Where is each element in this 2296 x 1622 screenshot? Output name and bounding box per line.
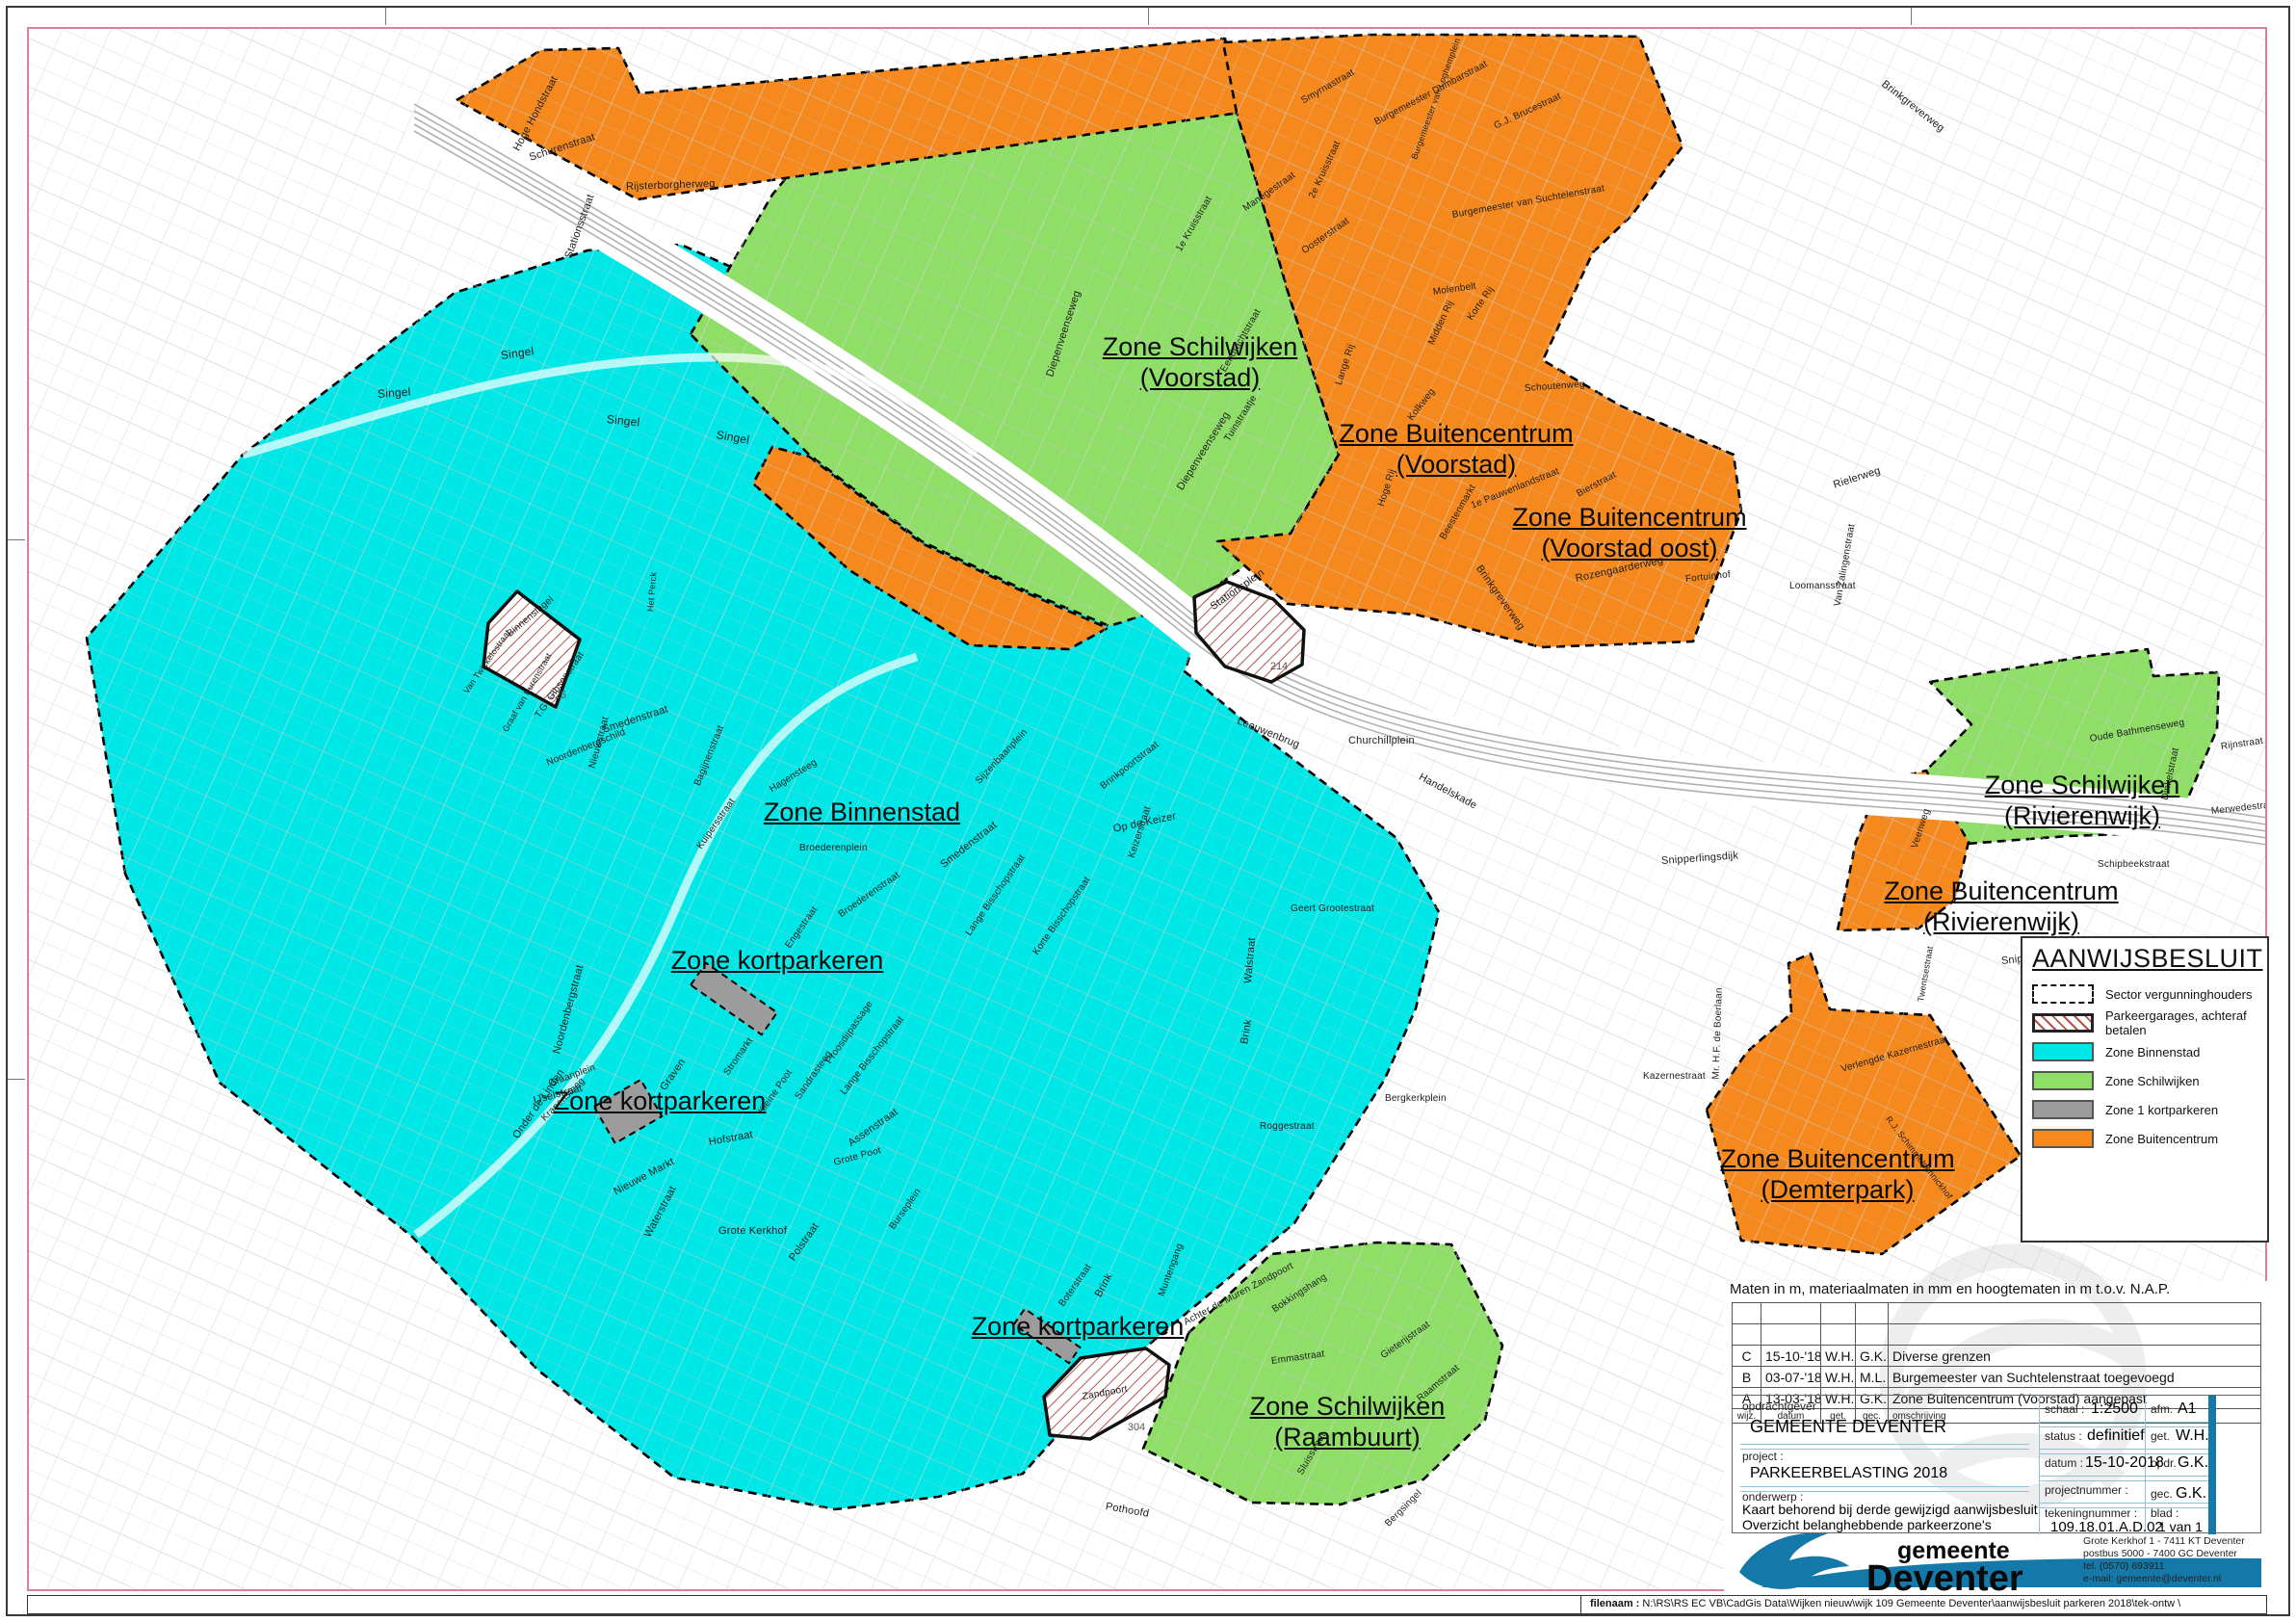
zone-label: Zone Buitencentrum (Voorstad)	[1339, 419, 1573, 481]
revision-description	[1889, 1324, 2261, 1346]
filename-label: filenaam :	[1590, 1598, 1639, 1609]
legend-item: Zone Binnenstad	[2032, 1041, 2257, 1062]
zone-label-line2: (Rivierenwijk)	[1884, 907, 2118, 938]
logo-word-deventer: Deventer	[1866, 1558, 2023, 1600]
date-label: datum :	[2045, 1456, 2083, 1470]
revision-drawn-by	[1821, 1324, 1856, 1346]
street-label: Churchillplein	[1348, 735, 1415, 746]
legend-item: Zone 1 kortparkeren	[2032, 1099, 2257, 1120]
zone-label: Zone Schilwijken (Rivierenwijk)	[1985, 771, 2180, 832]
fold-mark	[385, 8, 386, 25]
street-label: Broederenplein	[799, 843, 868, 853]
revision-drawn-by: W.H.	[1821, 1346, 1856, 1367]
revision-row: C 15-10-'18 W.H. G.K. Diverse grenzen	[1733, 1346, 2261, 1367]
client-ref-value: G.K.	[2178, 1454, 2208, 1472]
status-label: status :	[2045, 1429, 2082, 1443]
checked-value: G.K.	[2176, 1485, 2206, 1503]
drawingnumber-label: tekeningnummer :	[2045, 1506, 2137, 1520]
legend-swatch	[2032, 1071, 2094, 1090]
client-value: GEMEENTE DEVENTER	[1750, 1417, 1946, 1437]
revision-checked-by	[1856, 1303, 1889, 1324]
revision-description	[1889, 1303, 2261, 1324]
revision-drawn-by	[1821, 1303, 1856, 1324]
revision-date	[1761, 1303, 1821, 1324]
revision-date: 15-10-'18	[1761, 1346, 1821, 1367]
street-label: Singel	[378, 385, 411, 401]
fold-mark	[8, 1079, 25, 1080]
address-block: Grote Kerkhof 1 - 7411 KT Deventerpostbu…	[2083, 1535, 2245, 1586]
zone-label-line1: Zone Schilwijken	[1985, 771, 2180, 801]
revision-description: Burgemeester van Suchtelenstraat toegevo…	[1889, 1367, 2261, 1388]
street-label: Roggestraat	[1260, 1121, 1315, 1132]
street-label: Schipbeekstraat	[2098, 859, 2170, 870]
zone-label: Zone Schilwijken (Raambuurt)	[1250, 1392, 1446, 1453]
zone-label: Zone kortparkeren	[972, 1312, 1185, 1343]
zone-label-line2: (Demterpark)	[1720, 1175, 1954, 1206]
drawn-label: get.	[2151, 1429, 2170, 1443]
revision-letter: B	[1733, 1367, 1761, 1388]
filename-path: N:\RS\RS EC VB\CadGis Data\Wijken nieuw\…	[1642, 1598, 2180, 1609]
garage-number: 304	[1128, 1422, 1145, 1433]
revision-checked-by: G.K.	[1856, 1346, 1889, 1367]
legend-item-label: Zone Binnenstad	[2105, 1045, 2200, 1060]
garage-number: 325	[549, 690, 566, 701]
scale-value: 1:2500	[2091, 1400, 2138, 1418]
zone-label-line1: Zone kortparkeren	[554, 1086, 767, 1117]
size-value: A1	[2178, 1400, 2197, 1418]
legend-item-label: Sector vergunninghouders	[2105, 987, 2253, 1002]
revision-date	[1761, 1324, 1821, 1346]
title-block-fields: opdrachtgever : GEMEENTE DEVENTER projec…	[1732, 1395, 2261, 1533]
project-value: PARKEERBELASTING 2018	[1750, 1465, 1947, 1482]
zone-label: Zone Buitencentrum (Voorstad oost)	[1512, 503, 1746, 564]
status-value: definitief	[2087, 1427, 2145, 1445]
dimension-note: Maten in m, materiaalmaten in mm en hoog…	[1730, 1281, 2170, 1297]
zone-label: Zone Schilwijken (Voorstad)	[1103, 332, 1298, 394]
filename-text: filenaam : N:\RS\RS EC VB\CadGis Data\Wi…	[1590, 1598, 2180, 1609]
zone-label-line1: Zone kortparkeren	[671, 946, 884, 977]
zone-label-line2: (Voorstad)	[1103, 363, 1298, 394]
legend-title: AANWIJSBESLUIT	[2032, 944, 2257, 974]
legend-item: Zone Schilwijken	[2032, 1070, 2257, 1091]
revision-letter	[1733, 1324, 1761, 1346]
legend-item: Zone Buitencentrum	[2032, 1128, 2257, 1149]
zone-label: Zone kortparkeren	[554, 1086, 767, 1117]
legend-swatch	[2032, 1013, 2094, 1033]
address-line: postbus 5000 - 7400 GC Deventer	[2083, 1548, 2245, 1560]
filename-divider	[1580, 1596, 1581, 1613]
legend-item-label: Zone Buitencentrum	[2105, 1132, 2218, 1146]
zone-label-line2: (Voorstad oost)	[1512, 534, 1746, 564]
garage-number: 214	[1270, 661, 1288, 672]
subject-line1: Kaart behorend bij derde gewijzigd aanwi…	[1742, 1502, 2038, 1517]
fold-mark	[1148, 8, 1149, 25]
revision-row	[1733, 1303, 2261, 1324]
street-label: Grote Kerkhof	[718, 1225, 787, 1237]
street-label: Bergkerkplein	[1385, 1093, 1447, 1104]
revision-row	[1733, 1324, 2261, 1346]
revision-description: Diverse grenzen	[1889, 1346, 2261, 1367]
legend-swatch	[2032, 1129, 2094, 1148]
zone-label: Zone kortparkeren	[671, 946, 884, 977]
size-label: afm.	[2151, 1402, 2173, 1416]
legend-swatch	[2032, 1100, 2094, 1119]
legend-swatch	[2032, 984, 2094, 1004]
legend-item: Sector vergunninghouders	[2032, 983, 2257, 1005]
drawing-sheet: Zone Schilwijken (Voorstad) Zone Buitenc…	[0, 0, 2296, 1622]
project-label: project :	[1742, 1450, 1784, 1463]
projectnumber-label: projectnummer :	[2045, 1483, 2128, 1497]
zone-label: Zone Binnenstad	[764, 798, 960, 828]
address-line: tel. (0570) 693911	[2083, 1560, 2245, 1573]
subject-line2: Overzicht belanghebbende parkeerzone's	[1742, 1517, 1992, 1532]
client-label: opdrachtgever :	[1742, 1400, 1822, 1413]
title-block-accent-bar	[2208, 1396, 2216, 1534]
title-block: Maten in m, materiaalmaten in mm en hoog…	[1724, 1281, 2269, 1593]
revision-date: 03-07-'18	[1761, 1367, 1821, 1388]
filename-strip: filenaam : N:\RS\RS EC VB\CadGis Data\Wi…	[27, 1595, 2267, 1614]
revision-row: B 03-07-'18 W.H. M.L. Burgemeester van S…	[1733, 1367, 2261, 1388]
fold-mark	[1911, 8, 1912, 25]
legend-swatch	[2032, 1042, 2094, 1061]
zone-label-line1: Zone Buitencentrum	[1339, 419, 1573, 450]
zone-label-line1: Zone Buitencentrum	[1884, 876, 2118, 907]
zone-label: Zone Buitencentrum (Rivierenwijk)	[1884, 876, 2118, 938]
street-label: Kazernestraat	[1643, 1071, 1706, 1082]
revision-letter: C	[1733, 1346, 1761, 1367]
revision-drawn-by: W.H.	[1821, 1367, 1856, 1388]
zone-label-line1: Zone Schilwijken	[1103, 332, 1298, 363]
zone-label-line2: (Rivierenwijk)	[1985, 801, 2180, 832]
legend-item: Parkeergarages, achteraf betalen	[2032, 1012, 2257, 1033]
fold-mark	[8, 539, 25, 540]
drawn-value: W.H.	[2176, 1427, 2209, 1445]
checked-label: gec.	[2151, 1487, 2173, 1501]
zone-label-line1: Zone Binnenstad	[764, 798, 960, 828]
address-line: e-mail: gemeente@deventer.nl	[2083, 1573, 2245, 1585]
zone-label-line1: Zone kortparkeren	[972, 1312, 1185, 1343]
title-block-footer: gemeente Deventer Grote Kerkhof 1 - 7411…	[1732, 1533, 2261, 1591]
scale-label: schaal :	[2045, 1402, 2084, 1416]
address-line: Grote Kerkhof 1 - 7411 KT Deventer	[2083, 1535, 2245, 1548]
legend-item-label: Zone Schilwijken	[2105, 1074, 2200, 1088]
street-label: Geert Grootestraat	[1291, 903, 1374, 914]
sheet-label: blad :	[2151, 1506, 2179, 1520]
revision-checked-by: M.L.	[1856, 1367, 1889, 1388]
zone-label-line2: (Raambuurt)	[1250, 1423, 1446, 1453]
sheet-value: 1 van 1	[2158, 1519, 2203, 1534]
zone-label-line1: Zone Buitencentrum	[1512, 503, 1746, 534]
client-ref-label: opdr.	[2151, 1456, 2177, 1470]
legend-item-label: Zone 1 kortparkeren	[2105, 1103, 2218, 1117]
revision-letter	[1733, 1303, 1761, 1324]
legend: AANWIJSBESLUIT Sector vergunninghouders …	[2021, 936, 2269, 1243]
revision-checked-by	[1856, 1324, 1889, 1346]
legend-item-label: Parkeergarages, achteraf betalen	[2105, 1008, 2257, 1037]
